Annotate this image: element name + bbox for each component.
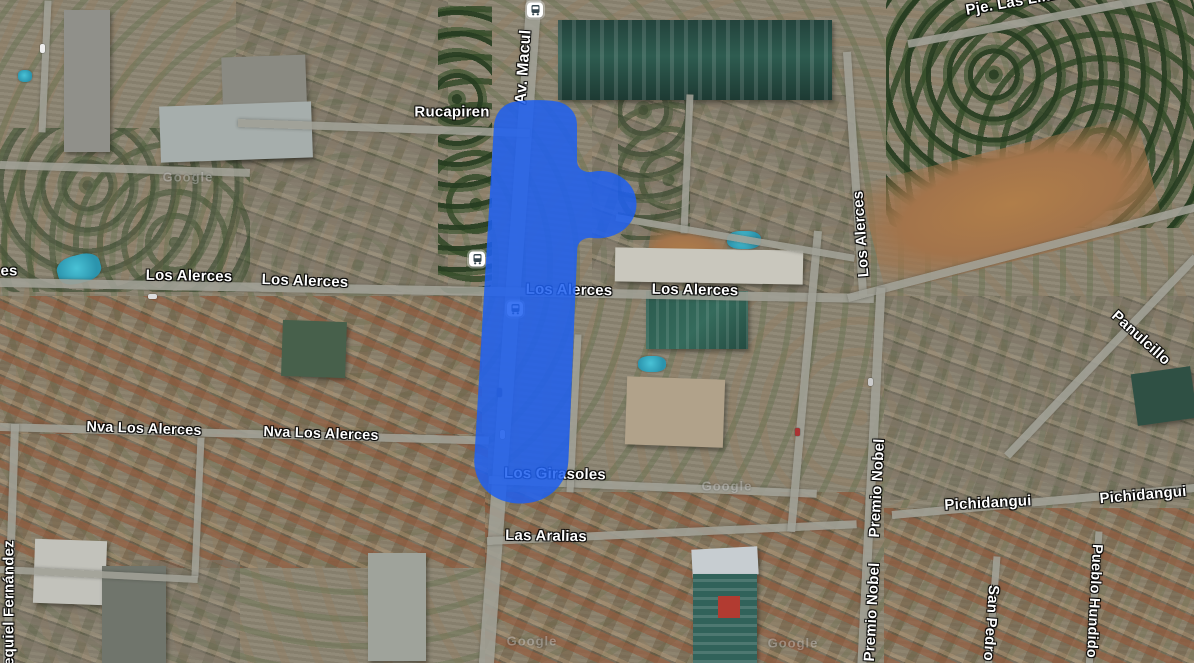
red-roof-patch bbox=[718, 596, 740, 618]
car bbox=[40, 44, 45, 53]
building-roof bbox=[691, 546, 758, 577]
street-label-los-alerces: Los Alerces bbox=[652, 281, 739, 300]
car bbox=[148, 294, 157, 299]
grey-building bbox=[368, 553, 426, 661]
car bbox=[795, 428, 800, 436]
street-label-los-alerces: Los Alerces bbox=[146, 267, 233, 286]
warehouse bbox=[625, 376, 725, 447]
apartment-strip bbox=[64, 10, 110, 152]
bus-icon bbox=[527, 3, 543, 18]
google-watermark: Google bbox=[702, 479, 753, 494]
bus-stop-icon[interactable] bbox=[469, 252, 485, 267]
tree-strip bbox=[438, 0, 492, 294]
street-label-rucapiren: Rucapiren bbox=[414, 104, 489, 121]
highrise-tower bbox=[693, 574, 757, 663]
street-label-fragment: es bbox=[0, 263, 17, 280]
green-apartment bbox=[281, 320, 347, 378]
street-label-las-aralias: Las Aralias bbox=[505, 527, 587, 545]
apartment-complex bbox=[558, 20, 832, 100]
google-watermark: Google bbox=[163, 170, 214, 185]
swimming-pool bbox=[18, 70, 32, 82]
green-building bbox=[1131, 366, 1194, 426]
google-watermark: Google bbox=[507, 634, 558, 649]
car bbox=[868, 378, 873, 386]
bus-icon bbox=[469, 252, 485, 267]
swimming-pool bbox=[638, 356, 666, 372]
street-label-ezequiel-fernandez: Ezequiel Fernández bbox=[1, 540, 18, 663]
street-label-los-alerces: Los Alerces bbox=[261, 271, 348, 291]
block-houses bbox=[884, 508, 1194, 663]
satellite-map[interactable]: Google Google Google Google Rucapiren Av… bbox=[0, 0, 1194, 663]
google-watermark: Google bbox=[768, 636, 819, 651]
bus-stop-icon[interactable] bbox=[527, 3, 543, 18]
long-building bbox=[159, 101, 313, 162]
block-houses bbox=[0, 296, 482, 434]
white-building bbox=[615, 247, 804, 284]
